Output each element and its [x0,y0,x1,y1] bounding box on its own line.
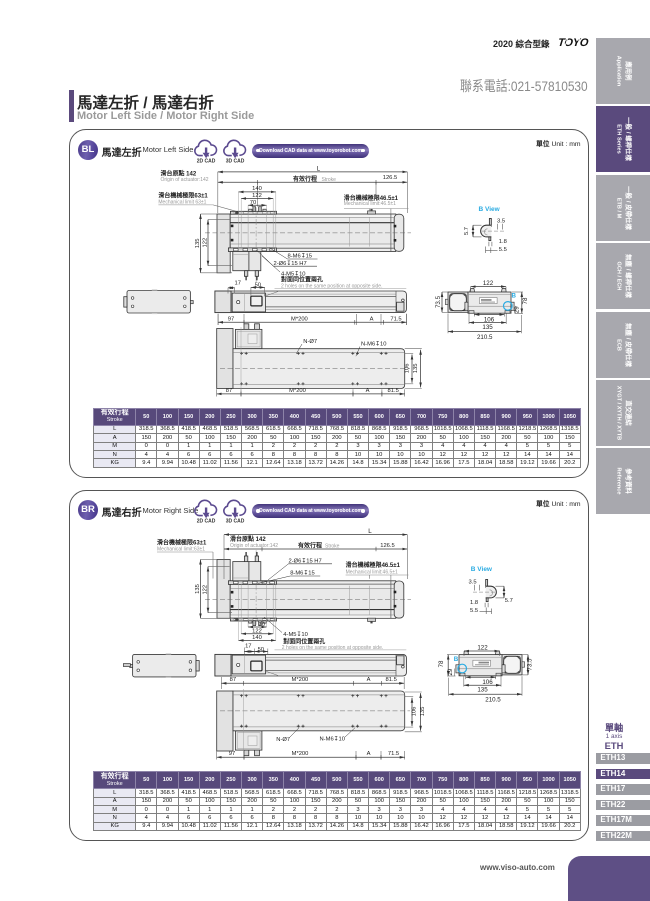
svg-text:2D CAD: 2D CAD [197,519,216,524]
svg-text:2D CAD: 2D CAD [197,158,216,163]
svg-text:3D CAD: 3D CAD [225,519,244,524]
svg-text:3D CAD: 3D CAD [225,158,244,163]
